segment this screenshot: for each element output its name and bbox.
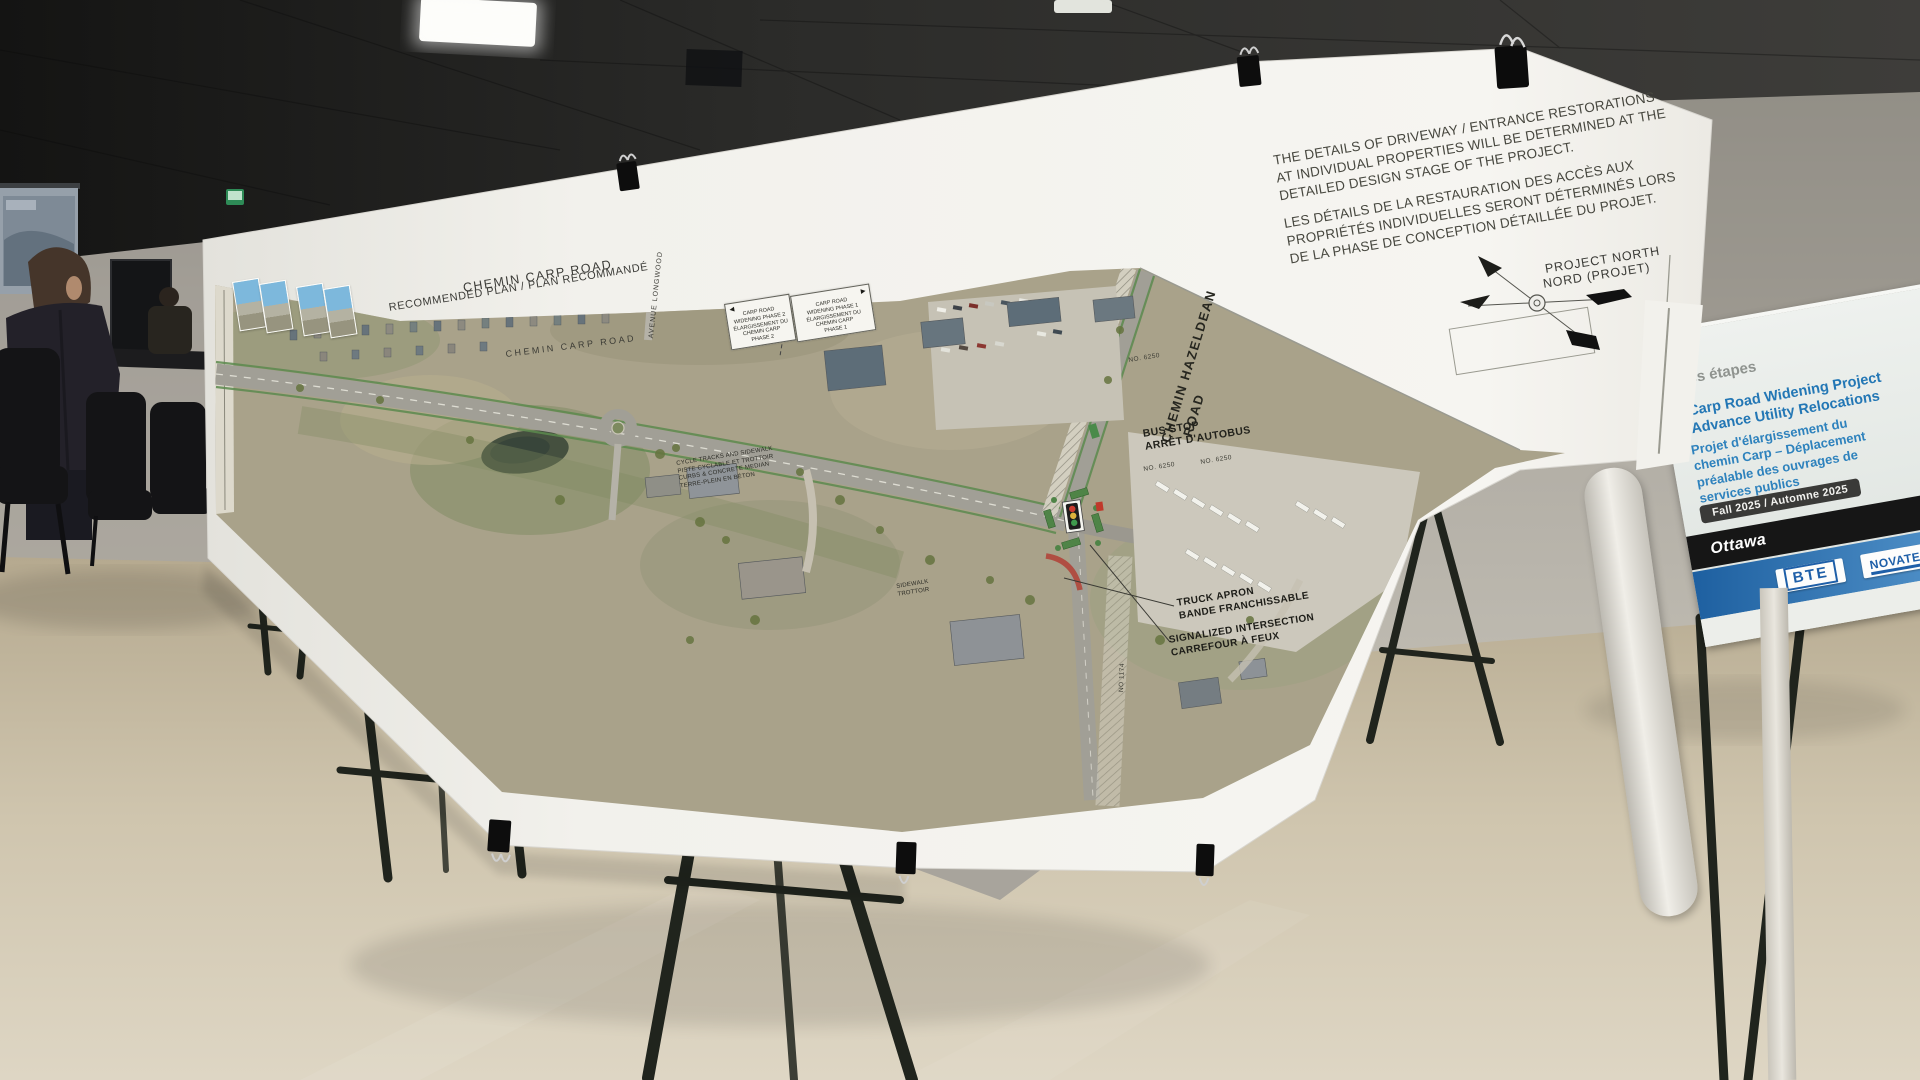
bte-logo: BTE bbox=[1783, 559, 1838, 591]
exit-sign bbox=[226, 189, 244, 205]
sign-marker-icon bbox=[1095, 501, 1103, 511]
ottawa-logo: Ottawa bbox=[1709, 531, 1768, 559]
photo-scene: es étapes Carp Road Widening Project Adv… bbox=[0, 0, 1920, 1080]
traffic-light-icon bbox=[1062, 500, 1084, 533]
novatech-logo: NOVATECH bbox=[1869, 546, 1920, 575]
parcel-number: NO 1174 bbox=[1118, 663, 1126, 692]
